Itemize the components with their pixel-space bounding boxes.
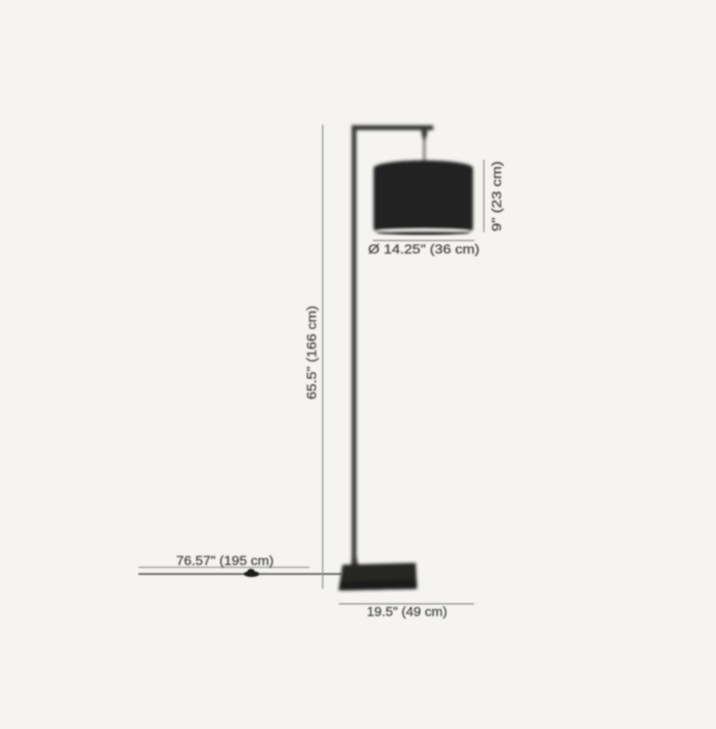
svg-text:76.57" (195 cm): 76.57" (195 cm) xyxy=(176,553,274,568)
svg-text:19.5" (49 cm): 19.5" (49 cm) xyxy=(367,604,447,619)
svg-text:65.5" (166 cm): 65.5" (166 cm) xyxy=(304,306,319,400)
svg-text:Ø 14.25" (36 cm): Ø 14.25" (36 cm) xyxy=(368,242,479,257)
svg-text:9" (23 cm): 9" (23 cm) xyxy=(489,161,504,231)
